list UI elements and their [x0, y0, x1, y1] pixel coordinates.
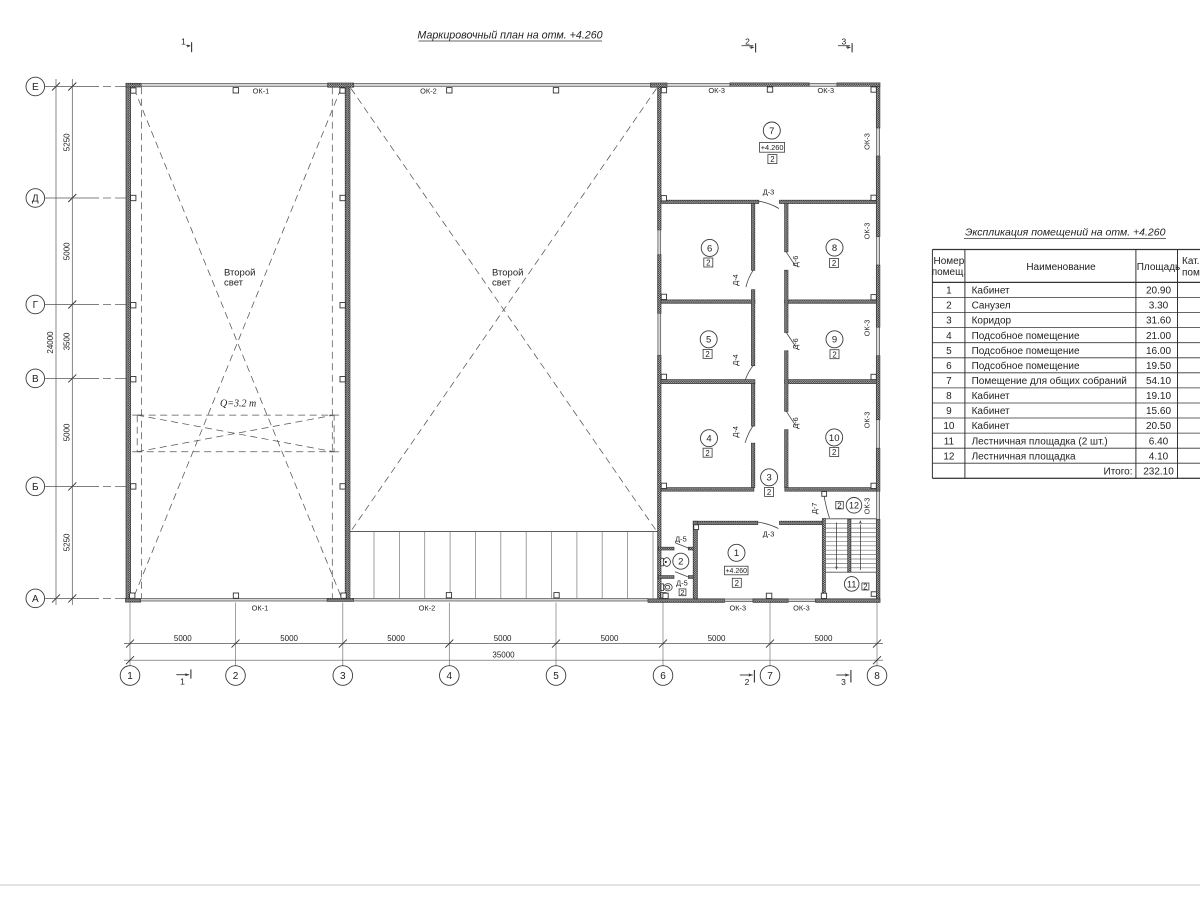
svg-text:2: 2	[863, 583, 868, 592]
svg-text:4: 4	[447, 671, 453, 682]
svg-text:3500: 3500	[63, 332, 72, 350]
svg-text:20.90: 20.90	[1146, 286, 1171, 297]
svg-text:10: 10	[943, 421, 955, 432]
svg-text:4: 4	[946, 331, 952, 342]
svg-text:3: 3	[340, 671, 346, 682]
svg-text:10: 10	[829, 433, 840, 444]
svg-text:24000: 24000	[46, 331, 55, 354]
svg-text:Д-5: Д-5	[676, 578, 688, 587]
svg-text:свет: свет	[492, 277, 512, 288]
svg-text:2: 2	[678, 557, 683, 568]
svg-text:1: 1	[180, 676, 185, 686]
svg-text:5000: 5000	[280, 634, 298, 643]
svg-text:5250: 5250	[63, 133, 72, 151]
svg-text:Кабинет: Кабинет	[972, 420, 1010, 432]
svg-text:6.40: 6.40	[1149, 436, 1169, 447]
svg-text:Д-6: Д-6	[791, 338, 800, 350]
svg-text:+4.260: +4.260	[761, 143, 784, 152]
svg-text:помещ.: помещ.	[932, 267, 966, 278]
svg-text:1: 1	[181, 37, 186, 47]
svg-text:6: 6	[707, 243, 712, 254]
svg-text:Санузел: Санузел	[972, 301, 1011, 312]
svg-text:2: 2	[745, 36, 750, 46]
svg-text:2: 2	[680, 588, 684, 597]
svg-text:Кат.: Кат.	[1182, 256, 1199, 267]
svg-text:ОК-3: ОК-3	[862, 223, 871, 240]
svg-text:3: 3	[766, 473, 771, 484]
svg-text:Д-5: Д-5	[675, 535, 687, 544]
svg-text:Подсобное помещение: Подсобное помещение	[972, 360, 1080, 372]
svg-text:2: 2	[770, 155, 774, 164]
svg-text:ОК-3: ОК-3	[793, 604, 810, 613]
svg-text:ОК-2: ОК-2	[420, 86, 437, 95]
svg-text:19.50: 19.50	[1146, 361, 1171, 372]
svg-text:2: 2	[837, 501, 842, 510]
svg-text:8: 8	[874, 671, 880, 682]
svg-text:12: 12	[943, 451, 955, 462]
svg-text:2: 2	[705, 449, 709, 458]
svg-text:ОК-3: ОК-3	[729, 604, 746, 613]
svg-text:4: 4	[706, 434, 711, 445]
svg-text:2: 2	[706, 259, 710, 268]
svg-text:Кабинет: Кабинет	[972, 285, 1010, 297]
svg-text:2: 2	[705, 350, 709, 359]
svg-text:Номер: Номер	[934, 256, 965, 267]
svg-text:6: 6	[660, 671, 666, 682]
svg-text:Д-4: Д-4	[731, 274, 740, 286]
svg-text:35000: 35000	[492, 650, 515, 659]
svg-text:В: В	[32, 374, 39, 385]
svg-text:8: 8	[832, 243, 837, 254]
svg-text:5000: 5000	[174, 634, 192, 643]
svg-text:Коридор: Коридор	[972, 316, 1012, 327]
svg-text:31.60: 31.60	[1146, 316, 1171, 327]
svg-text:1: 1	[734, 548, 739, 559]
svg-text:3: 3	[946, 316, 952, 327]
svg-text:Помещение для общих собраний: Помещение для общих собраний	[972, 375, 1127, 387]
svg-text:ОК-1: ОК-1	[253, 86, 270, 95]
svg-text:Подсобное помещение: Подсобное помещение	[972, 330, 1080, 342]
svg-text:4.10: 4.10	[1149, 451, 1169, 462]
svg-text:5000: 5000	[494, 634, 512, 643]
svg-text:5000: 5000	[815, 634, 833, 643]
svg-text:2: 2	[233, 671, 239, 682]
svg-text:9: 9	[832, 335, 837, 346]
svg-text:19.10: 19.10	[1146, 391, 1171, 402]
svg-text:Д-3: Д-3	[763, 529, 775, 538]
svg-text:20.50: 20.50	[1146, 421, 1171, 432]
svg-text:ОК-1: ОК-1	[252, 604, 269, 613]
svg-text:5000: 5000	[63, 242, 72, 260]
svg-text:Д-4: Д-4	[731, 354, 740, 366]
svg-text:Кабинет: Кабинет	[972, 390, 1010, 402]
svg-text:6: 6	[946, 361, 952, 372]
svg-text:Д-4: Д-4	[731, 426, 740, 438]
svg-text:Д-3: Д-3	[763, 188, 775, 197]
svg-text:2: 2	[946, 301, 952, 312]
svg-text:3: 3	[841, 677, 846, 687]
svg-text:11: 11	[944, 436, 955, 447]
svg-text:54.10: 54.10	[1146, 376, 1171, 387]
svg-text:16.00: 16.00	[1146, 346, 1171, 357]
svg-text:Маркировочный план на отм. +4.: Маркировочный план на отм. +4.260	[417, 30, 602, 42]
svg-text:Лестничная площадка: Лестничная площадка	[972, 451, 1076, 462]
svg-text:12: 12	[849, 501, 859, 511]
svg-text:9: 9	[946, 406, 952, 417]
svg-text:Наименование: Наименование	[1026, 262, 1096, 273]
svg-text:5: 5	[946, 346, 952, 357]
svg-text:Б: Б	[32, 482, 39, 493]
svg-text:свет: свет	[224, 277, 244, 288]
svg-text:Д: Д	[32, 194, 39, 205]
svg-text:11: 11	[847, 579, 856, 589]
svg-text:8: 8	[946, 391, 952, 402]
svg-text:5000: 5000	[63, 423, 72, 441]
svg-text:5000: 5000	[387, 634, 405, 643]
svg-text:Площадь: Площадь	[1137, 262, 1181, 273]
svg-text:2: 2	[832, 448, 836, 457]
svg-text:5000: 5000	[601, 634, 619, 643]
svg-text:Д-6: Д-6	[791, 417, 800, 429]
svg-text:1: 1	[946, 286, 952, 297]
svg-text:ОК-3: ОК-3	[708, 86, 725, 95]
svg-text:232.10: 232.10	[1143, 466, 1174, 477]
svg-text:Подсобное помещение: Подсобное помещение	[972, 345, 1080, 357]
svg-text:Г: Г	[33, 300, 39, 311]
svg-text:Д-7: Д-7	[810, 503, 819, 515]
svg-text:Экспликация помещений на отм.: Экспликация помещений на отм. +4.260	[965, 227, 1165, 239]
svg-text:15.60: 15.60	[1146, 406, 1171, 417]
svg-text:ОК-3: ОК-3	[862, 320, 871, 337]
svg-text:пом.: пом.	[1182, 268, 1200, 279]
svg-text:3: 3	[842, 36, 847, 46]
svg-text:Лестничная площадка (2 шт.): Лестничная площадка (2 шт.)	[972, 436, 1108, 447]
svg-text:ОК-3: ОК-3	[862, 133, 871, 150]
svg-text:Итого:: Итого:	[1104, 466, 1133, 477]
svg-text:1: 1	[127, 671, 133, 682]
svg-text:2: 2	[735, 579, 739, 588]
svg-text:ОК-3: ОК-3	[862, 412, 871, 429]
svg-text:+4.260: +4.260	[725, 566, 747, 575]
svg-text:ОК-3: ОК-3	[862, 498, 871, 515]
svg-text:7: 7	[769, 126, 774, 137]
svg-text:5000: 5000	[708, 634, 726, 643]
svg-text:А: А	[32, 594, 39, 605]
svg-text:7: 7	[946, 376, 952, 387]
svg-text:2: 2	[832, 259, 836, 268]
svg-text:Д-6: Д-6	[791, 256, 800, 268]
svg-text:Е: Е	[32, 82, 39, 93]
svg-text:3.30: 3.30	[1149, 301, 1169, 312]
svg-text:21.00: 21.00	[1146, 331, 1171, 342]
svg-text:2: 2	[832, 350, 836, 359]
svg-text:2: 2	[745, 677, 750, 687]
svg-text:ОК-3: ОК-3	[817, 86, 834, 95]
svg-text:2: 2	[767, 488, 771, 497]
svg-text:7: 7	[767, 671, 773, 682]
svg-text:ОК-2: ОК-2	[419, 604, 436, 613]
svg-text:5: 5	[706, 335, 711, 346]
svg-text:5: 5	[553, 671, 559, 682]
svg-text:Q=3.2 т: Q=3.2 т	[220, 398, 256, 409]
svg-text:5250: 5250	[63, 533, 72, 551]
svg-text:Кабинет: Кабинет	[972, 405, 1010, 417]
